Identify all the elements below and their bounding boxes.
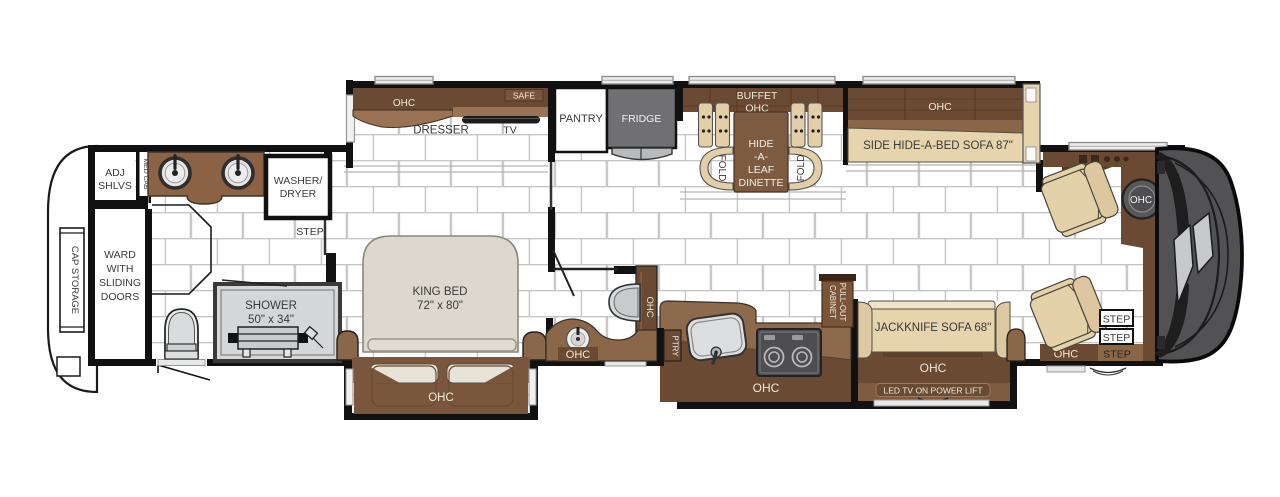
svg-text:LED TV ON POWER LIFT: LED TV ON POWER LIFT: [883, 386, 982, 396]
svg-text:SHOWER: SHOWER: [245, 300, 297, 312]
svg-text:OHC: OHC: [428, 392, 454, 404]
svg-text:72" x 80": 72" x 80": [417, 300, 463, 312]
svg-text:OHC: OHC: [753, 381, 780, 395]
svg-text:CAP STORAGE: CAP STORAGE: [69, 246, 80, 314]
svg-text:STEP: STEP: [1103, 349, 1130, 361]
svg-text:DRESSER: DRESSER: [413, 125, 469, 137]
svg-text:ADJ: ADJ: [105, 167, 125, 179]
svg-text:PTRY: PTRY: [671, 335, 680, 357]
svg-text:WITH: WITH: [107, 263, 134, 275]
svg-text:STEP: STEP: [1103, 332, 1130, 344]
svg-text:SIDE HIDE-A-BED SOFA 87": SIDE HIDE-A-BED SOFA 87": [863, 140, 1013, 152]
svg-text:WARD: WARD: [104, 249, 136, 261]
svg-text:FRIDGE: FRIDGE: [622, 113, 662, 125]
svg-text:HIDE: HIDE: [748, 138, 773, 150]
svg-text:OHC: OHC: [644, 296, 655, 317]
svg-text:OHC: OHC: [393, 98, 415, 109]
svg-text:SHLVS: SHLVS: [98, 180, 132, 192]
svg-text:DOORS: DOORS: [101, 291, 140, 303]
svg-text:PULL-OUT: PULL-OUT: [838, 283, 847, 322]
svg-text:JACKKNIFE SOFA 68": JACKKNIFE SOFA 68": [875, 322, 992, 334]
svg-text:50" x 34": 50" x 34": [248, 314, 294, 326]
svg-text:KING BED: KING BED: [413, 286, 468, 298]
svg-text:-A-: -A-: [754, 151, 769, 163]
svg-text:OHC: OHC: [920, 361, 947, 375]
svg-text:LEAF: LEAF: [748, 164, 774, 176]
svg-text:CABINET: CABINET: [828, 285, 837, 319]
svg-text:STEP: STEP: [296, 226, 323, 238]
svg-text:SLIDING: SLIDING: [99, 277, 141, 289]
svg-text:WASHER/: WASHER/: [274, 175, 323, 187]
svg-text:BUFFET: BUFFET: [737, 90, 778, 102]
svg-text:FOLD: FOLD: [796, 155, 807, 182]
svg-text:DRYER: DRYER: [280, 188, 317, 200]
svg-text:SAFE: SAFE: [513, 91, 536, 101]
svg-text:DINETTE: DINETTE: [739, 177, 784, 189]
svg-text:OHC: OHC: [1130, 195, 1152, 206]
svg-text:OHC: OHC: [566, 349, 591, 361]
svg-text:FOLD: FOLD: [716, 155, 727, 182]
svg-text:OHC: OHC: [928, 101, 952, 113]
svg-text:PANTRY: PANTRY: [559, 113, 603, 125]
svg-text:STEP: STEP: [1103, 314, 1130, 326]
svg-text:TV: TV: [503, 125, 516, 137]
